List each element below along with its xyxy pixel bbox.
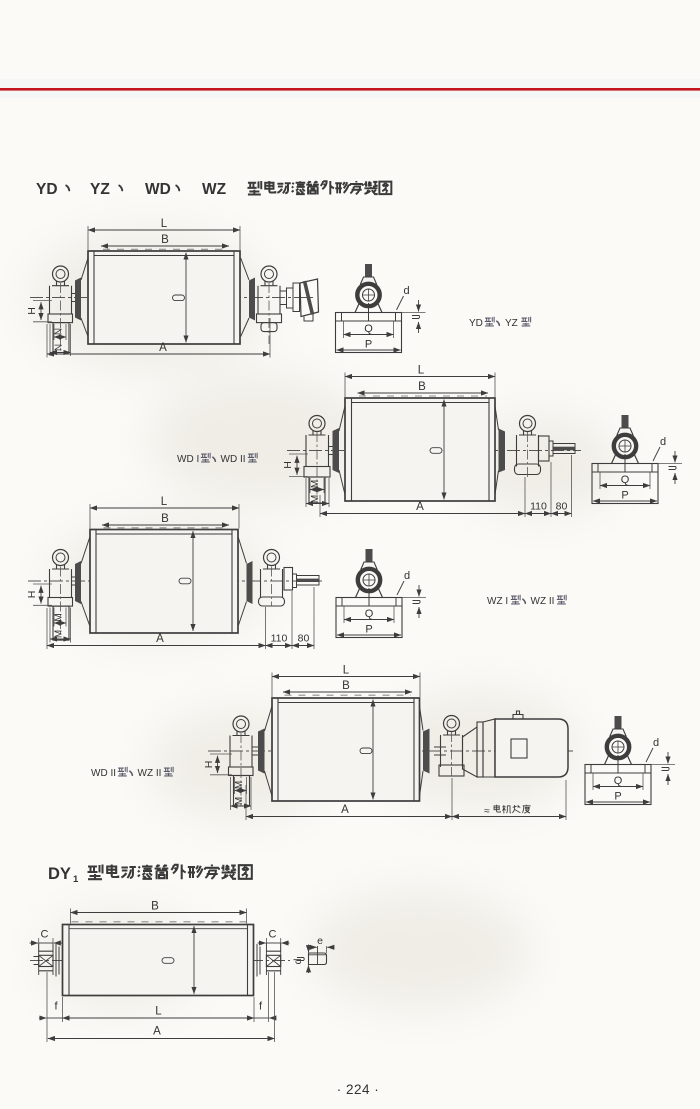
svg-text:B: B <box>161 513 169 525</box>
svg-text:N: N <box>54 344 65 351</box>
svg-text:WZ II: WZ II <box>531 596 555 607</box>
svg-text:A: A <box>159 342 167 354</box>
svg-text:H: H <box>26 591 38 599</box>
svg-text:· 224 ·: · 224 · <box>337 1082 380 1097</box>
svg-text:Q: Q <box>365 608 374 620</box>
svg-text:WZ I: WZ I <box>487 596 508 607</box>
svg-text:WZ: WZ <box>202 181 227 198</box>
svg-text:M: M <box>234 781 245 789</box>
svg-text:e: e <box>317 935 323 947</box>
svg-text:110: 110 <box>530 501 547 513</box>
svg-text:YZ: YZ <box>505 318 518 329</box>
svg-text:A: A <box>416 501 424 513</box>
svg-text:d: d <box>404 570 410 582</box>
svg-text:B: B <box>418 381 426 393</box>
svg-text:P: P <box>365 624 372 636</box>
svg-text:N: N <box>54 328 65 335</box>
svg-text:M: M <box>310 480 321 488</box>
svg-text:YD: YD <box>36 181 58 198</box>
svg-text:B: B <box>161 234 169 246</box>
svg-text:80: 80 <box>556 501 568 513</box>
svg-text:C: C <box>41 929 49 941</box>
svg-text:P: P <box>365 339 372 351</box>
svg-text:M: M <box>310 495 321 503</box>
svg-text:C: C <box>269 929 277 941</box>
svg-text:H: H <box>203 761 215 769</box>
svg-text:WD: WD <box>145 181 171 198</box>
svg-text:L: L <box>161 496 168 508</box>
svg-text:A: A <box>341 804 349 816</box>
svg-text:WD II: WD II <box>221 454 246 465</box>
svg-text:A: A <box>153 1026 161 1038</box>
svg-text:B: B <box>342 680 350 692</box>
svg-text:P: P <box>614 791 621 803</box>
svg-text:DY: DY <box>48 865 71 883</box>
svg-text:110: 110 <box>271 633 288 645</box>
svg-text:Q: Q <box>621 474 630 486</box>
svg-text:d: d <box>403 285 409 297</box>
svg-text:Q: Q <box>614 775 623 787</box>
svg-text:YZ: YZ <box>90 181 110 198</box>
svg-text:B: B <box>151 901 159 913</box>
svg-text:H: H <box>282 461 294 469</box>
svg-text:WZ II: WZ II <box>138 768 162 779</box>
svg-text:80: 80 <box>298 633 310 645</box>
svg-text:M: M <box>54 630 65 638</box>
svg-text:WD II: WD II <box>91 768 116 779</box>
svg-text:L: L <box>418 365 425 377</box>
svg-text:d: d <box>660 436 666 448</box>
svg-text:1: 1 <box>73 874 79 885</box>
svg-text:YD: YD <box>469 318 483 329</box>
svg-text:d: d <box>653 737 659 749</box>
svg-text:L: L <box>343 665 350 677</box>
svg-text:d: d <box>292 958 304 964</box>
svg-text:Q: Q <box>364 323 373 335</box>
svg-text:A: A <box>156 633 164 645</box>
svg-text:H: H <box>26 307 38 315</box>
svg-text:L: L <box>155 1006 162 1018</box>
svg-text:M: M <box>234 797 245 805</box>
svg-text:M: M <box>54 613 65 621</box>
svg-text:WD I: WD I <box>177 454 199 465</box>
svg-text:≈: ≈ <box>484 806 490 817</box>
svg-text:L: L <box>161 218 168 230</box>
svg-text:P: P <box>621 490 628 502</box>
